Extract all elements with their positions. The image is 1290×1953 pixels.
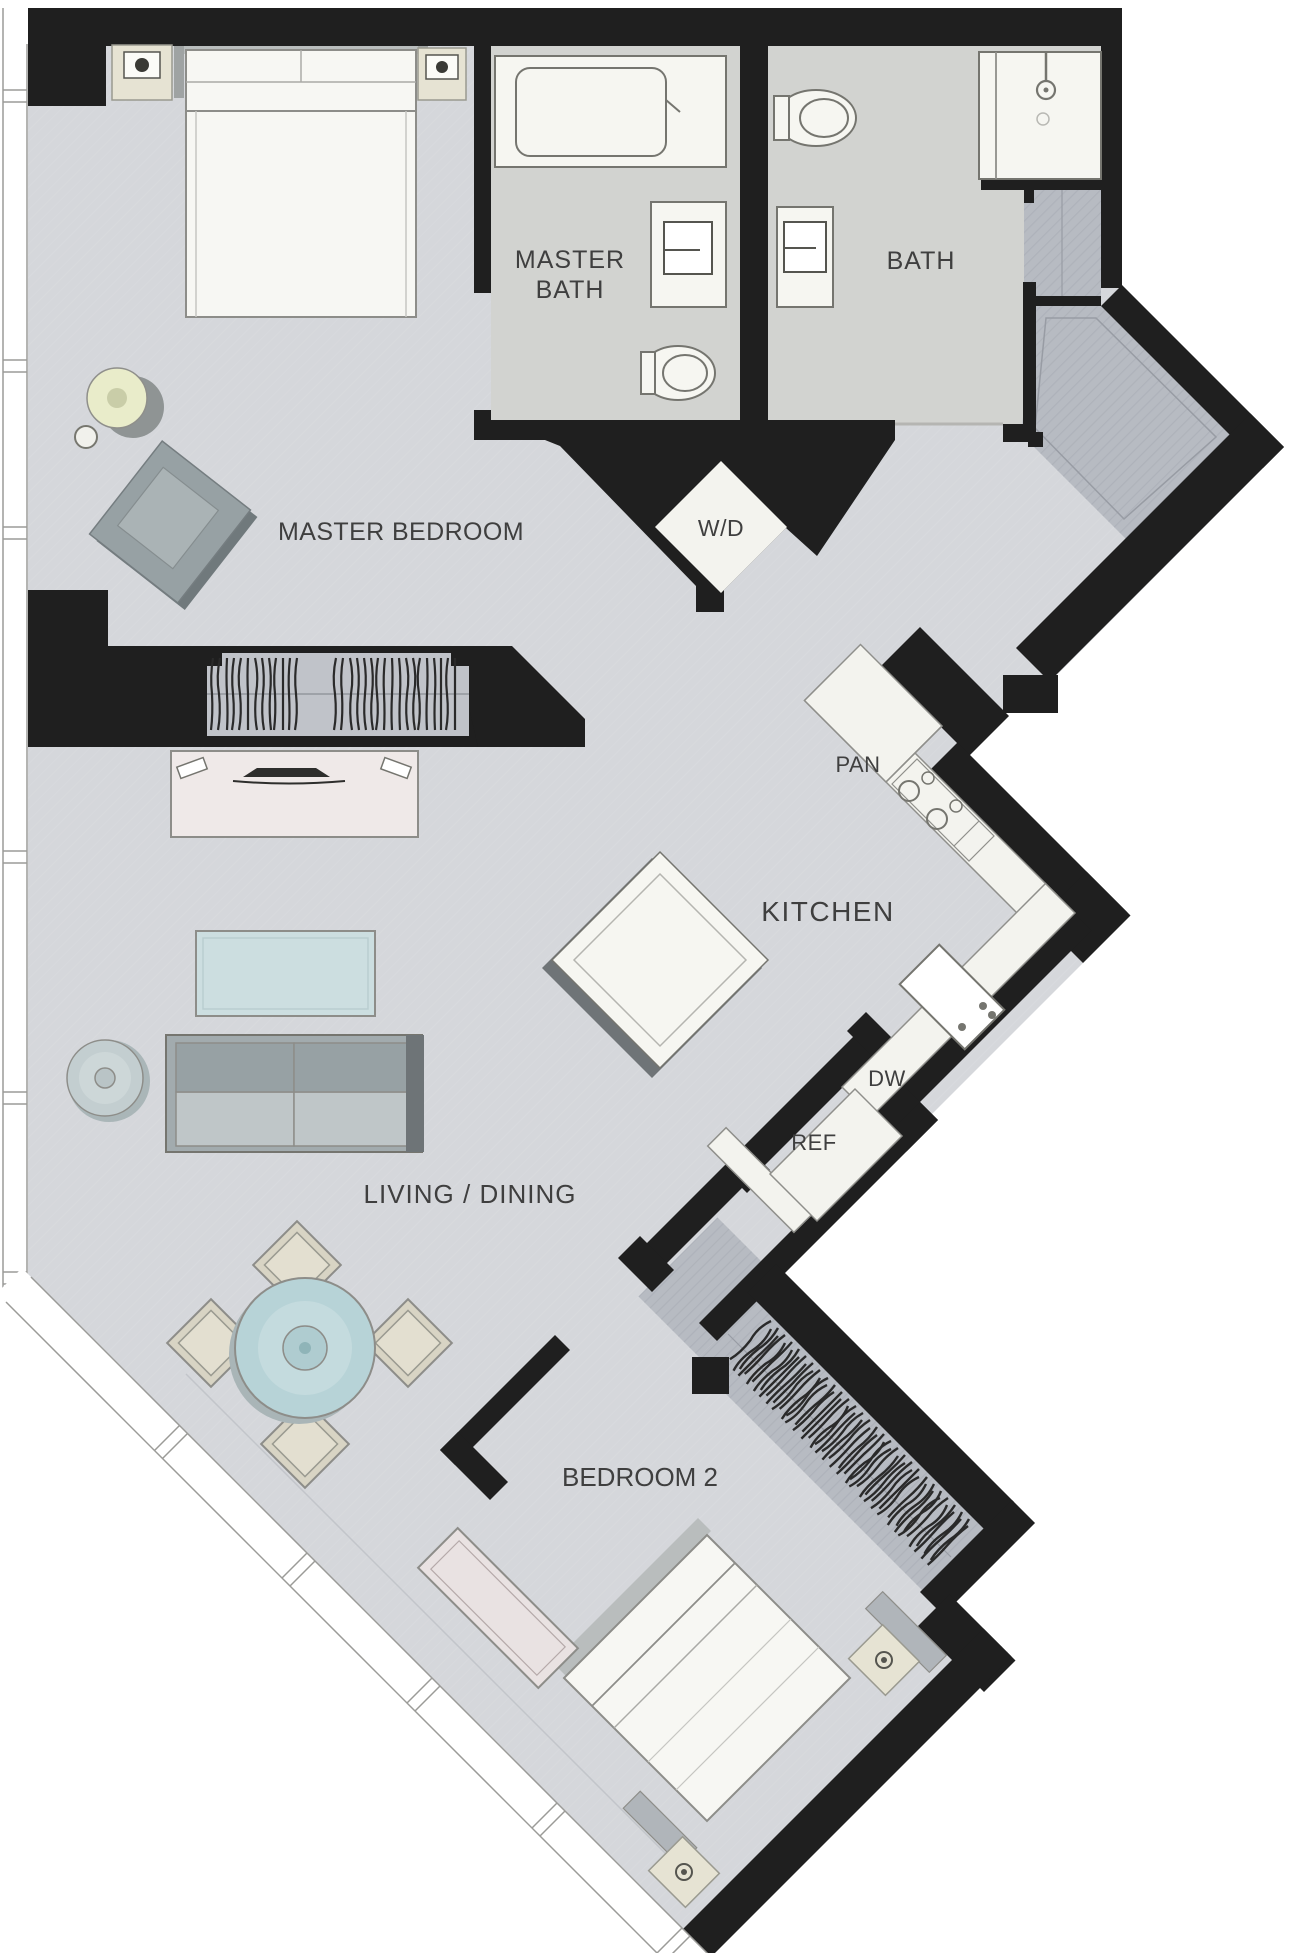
svg-text:BATH: BATH: [887, 247, 956, 275]
svg-text:REF: REF: [791, 1130, 837, 1155]
svg-text:MASTER BEDROOM: MASTER BEDROOM: [278, 518, 524, 546]
svg-text:BEDROOM 2: BEDROOM 2: [562, 1462, 718, 1492]
svg-text:MASTER: MASTER: [515, 246, 625, 274]
svg-text:BATH: BATH: [536, 276, 605, 304]
svg-text:PAN: PAN: [835, 752, 880, 777]
svg-text:KITCHEN: KITCHEN: [761, 896, 894, 927]
svg-text:LIVING / DINING: LIVING / DINING: [364, 1179, 577, 1209]
svg-text:DW: DW: [868, 1066, 906, 1091]
svg-text:W/D: W/D: [698, 515, 744, 541]
